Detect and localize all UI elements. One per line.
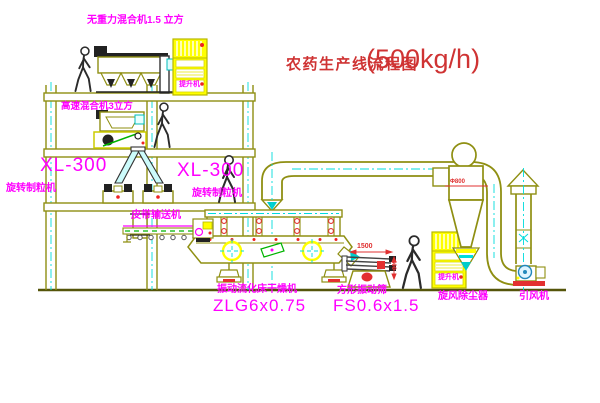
label-elevator-2: 提升机 — [438, 274, 459, 281]
label-granulator-mid-name: 旋转制粒机 — [192, 189, 242, 199]
dim-sieve-length: 1500 — [357, 243, 373, 250]
cad-drawing-canvas: 农药生产线流程图 (500kg/h) 无重力混合机1.5 立方 高速混合机3立方… — [0, 0, 600, 403]
induced-draft-fan — [513, 266, 545, 287]
label-granulator-mid-model: XL-300 — [177, 161, 244, 180]
label-dryer-model: ZLG6x0.75 — [213, 297, 306, 314]
dryer-feeder — [193, 219, 213, 242]
granulator-left — [103, 184, 133, 203]
gravity-free-mixer — [94, 46, 175, 93]
label-sieve-name: 方形振动筛 — [337, 286, 387, 296]
label-granulator-left-name: 旋转制粒机 — [6, 184, 56, 194]
granulator-mid — [143, 184, 173, 203]
high-speed-mixer — [94, 110, 146, 148]
drawing-title-capacity: (500kg/h) — [366, 44, 480, 75]
label-fan: 引风机 — [519, 292, 549, 302]
person-figure-ground — [403, 236, 421, 288]
label-cyclone: 旋风除尘器 — [438, 292, 488, 302]
dim-cyclone-diameter: Φ800 — [450, 179, 465, 185]
dim-sieve-height: 600 — [390, 260, 396, 270]
label-elevator-1: 提升机 — [179, 81, 200, 88]
label-granulator-left-model: XL-300 — [40, 156, 107, 175]
label-sieve-model: FS0.6x1.5 — [333, 297, 420, 314]
label-belt-conveyor: 皮带输送机 — [131, 211, 181, 221]
label-gravity-mixer: 无重力混合机1.5 立方 — [87, 16, 184, 26]
person-figure-roof — [75, 47, 90, 91]
fluid-bed-dryer — [188, 210, 360, 282]
label-dryer-name: 振动流化床干燥机 — [217, 285, 297, 295]
label-high-speed-mixer: 高速混合机3立方 — [61, 102, 133, 112]
